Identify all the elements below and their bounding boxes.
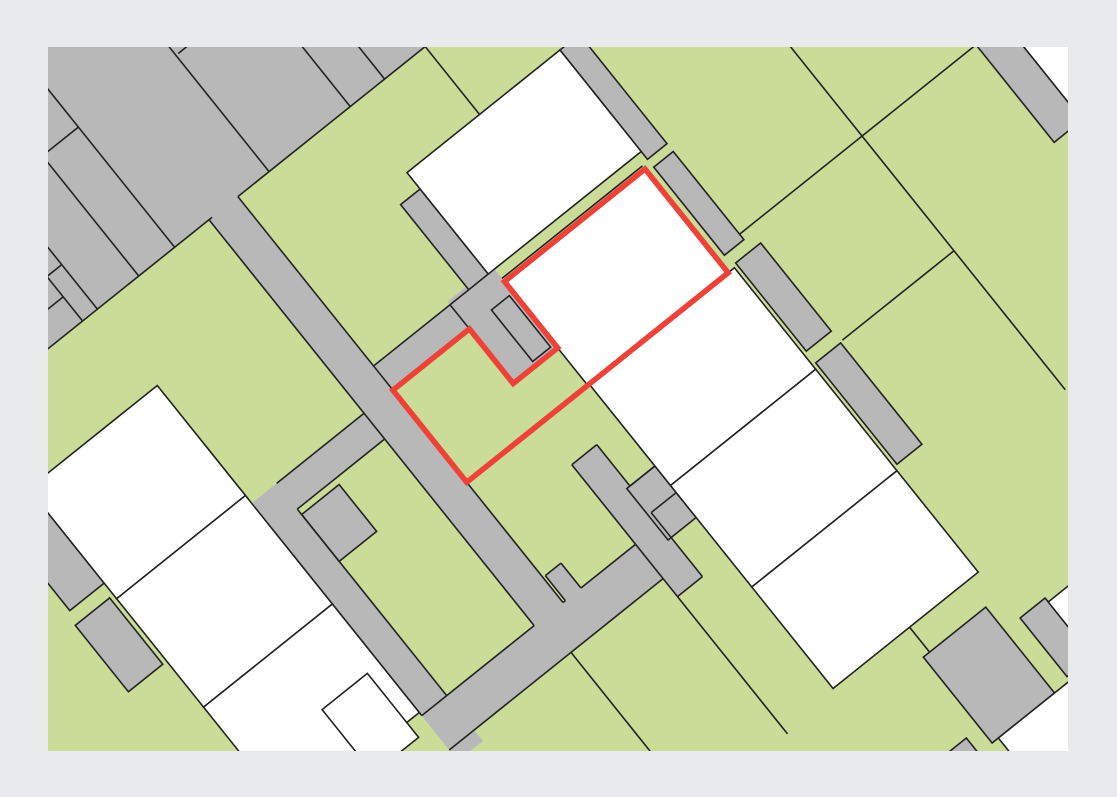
parcel-boundary-line (842, 251, 954, 340)
map-viewport[interactable] (48, 47, 1068, 751)
parcel-boundary-line (425, 47, 479, 114)
map-canvas[interactable] (48, 47, 1068, 751)
parcel-boundary-line (740, 47, 976, 234)
parcel-boundary-line (571, 652, 695, 751)
rotated-map-group (48, 47, 1068, 751)
parcel-boundary-line (238, 197, 393, 391)
